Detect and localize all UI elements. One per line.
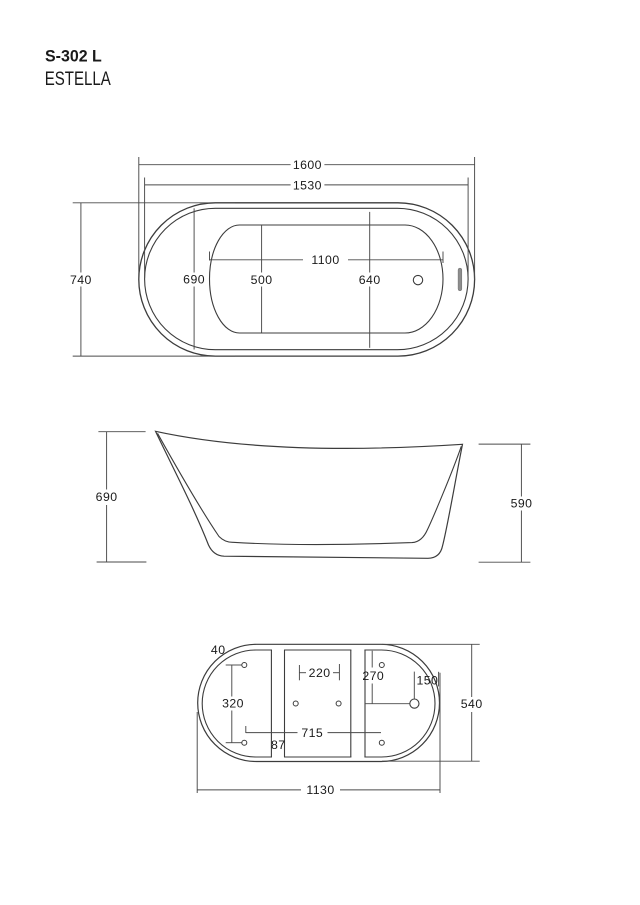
svg-text:40: 40 — [211, 643, 226, 657]
svg-text:540: 540 — [461, 697, 483, 711]
svg-text:ESTELLA: ESTELLA — [45, 67, 111, 90]
svg-text:740: 740 — [70, 273, 92, 287]
svg-text:1600: 1600 — [293, 158, 322, 172]
svg-text:590: 590 — [511, 496, 533, 510]
svg-text:500: 500 — [251, 273, 273, 287]
svg-text:1530: 1530 — [293, 178, 322, 192]
svg-text:640: 640 — [359, 273, 381, 287]
svg-text:320: 320 — [222, 697, 244, 711]
svg-text:715: 715 — [301, 726, 323, 740]
svg-text:220: 220 — [309, 666, 331, 680]
svg-text:690: 690 — [96, 490, 118, 504]
svg-text:1100: 1100 — [311, 253, 339, 267]
svg-text:S-302 L: S-302 L — [45, 47, 102, 65]
svg-text:87: 87 — [271, 738, 286, 752]
svg-text:1130: 1130 — [306, 783, 334, 797]
svg-text:270: 270 — [362, 669, 384, 683]
svg-text:690: 690 — [183, 273, 205, 287]
svg-text:150: 150 — [416, 673, 438, 687]
